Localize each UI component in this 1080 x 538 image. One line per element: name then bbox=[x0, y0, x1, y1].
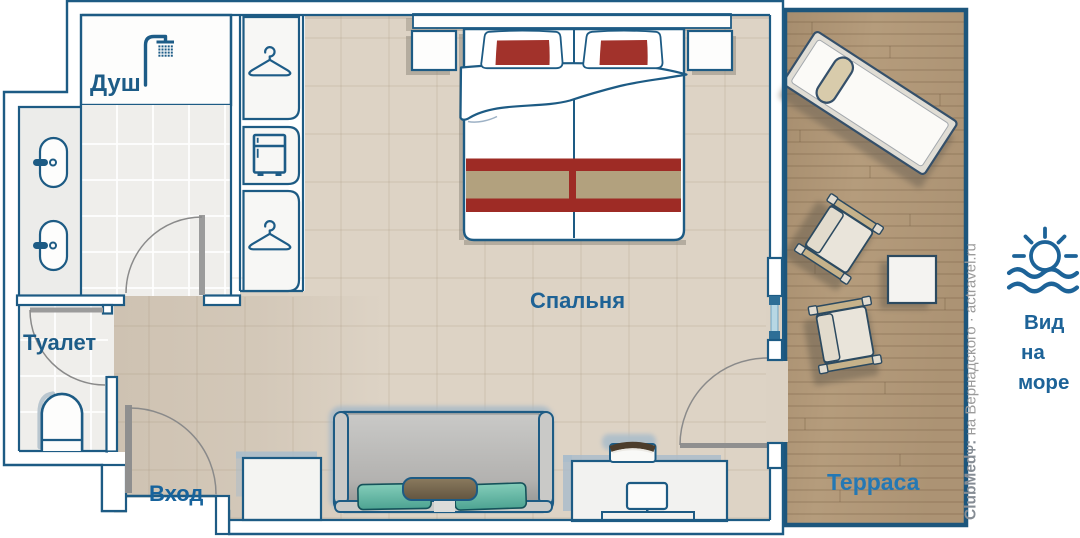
svg-text:Душ: Душ bbox=[90, 70, 141, 97]
svg-text:море: море bbox=[1018, 371, 1069, 394]
svg-text:Спальня: Спальня bbox=[530, 288, 625, 313]
svg-text:Вид: Вид bbox=[1024, 311, 1064, 334]
svg-text:ClubMedΨ: на Вернадского · act: ClubMedΨ: на Вернадского · actravel.ru bbox=[963, 243, 980, 520]
svg-text:Терраса: Терраса bbox=[827, 469, 920, 495]
svg-text:Туалет: Туалет bbox=[23, 330, 96, 355]
svg-text:на: на bbox=[1021, 341, 1045, 364]
svg-text:Вход: Вход bbox=[149, 481, 203, 506]
